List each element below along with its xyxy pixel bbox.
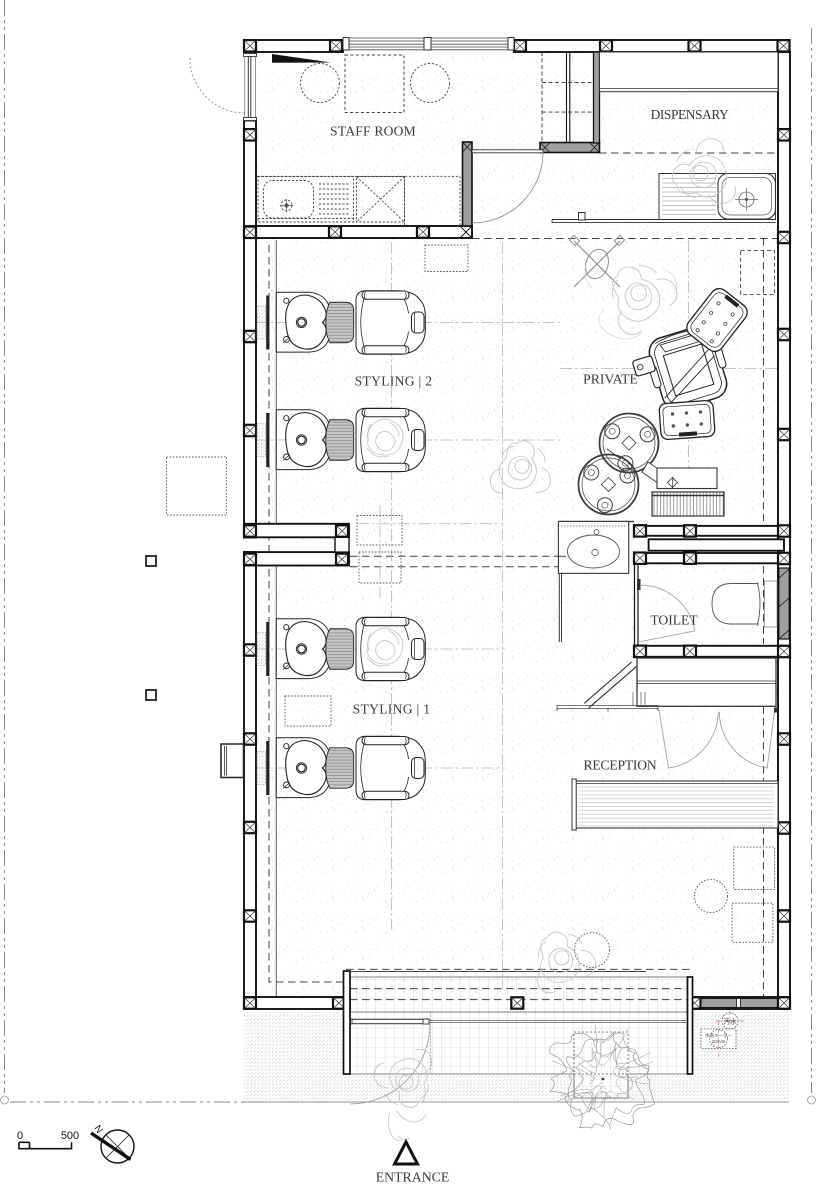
svg-text:汚水: 汚水 bbox=[724, 1017, 738, 1026]
svg-text:0: 0 bbox=[17, 1130, 23, 1142]
svg-text:500: 500 bbox=[61, 1130, 79, 1142]
svg-text:PRIVATE: PRIVATE bbox=[583, 372, 638, 387]
svg-text:STAFF ROOM: STAFF ROOM bbox=[330, 124, 416, 139]
svg-text:水道メーター: 水道メーター bbox=[705, 1032, 732, 1039]
svg-text:STYLING | 2: STYLING | 2 bbox=[355, 374, 433, 389]
svg-text:TOILET: TOILET bbox=[650, 613, 698, 628]
svg-text:20m/m: 20m/m bbox=[712, 1039, 726, 1044]
svg-text:DISPENSARY: DISPENSARY bbox=[651, 107, 730, 122]
svg-text:RECEPTION: RECEPTION bbox=[584, 758, 657, 773]
svg-text:ENTRANCE: ENTRANCE bbox=[376, 1170, 450, 1185]
svg-text:STYLING | 1: STYLING | 1 bbox=[353, 702, 431, 717]
